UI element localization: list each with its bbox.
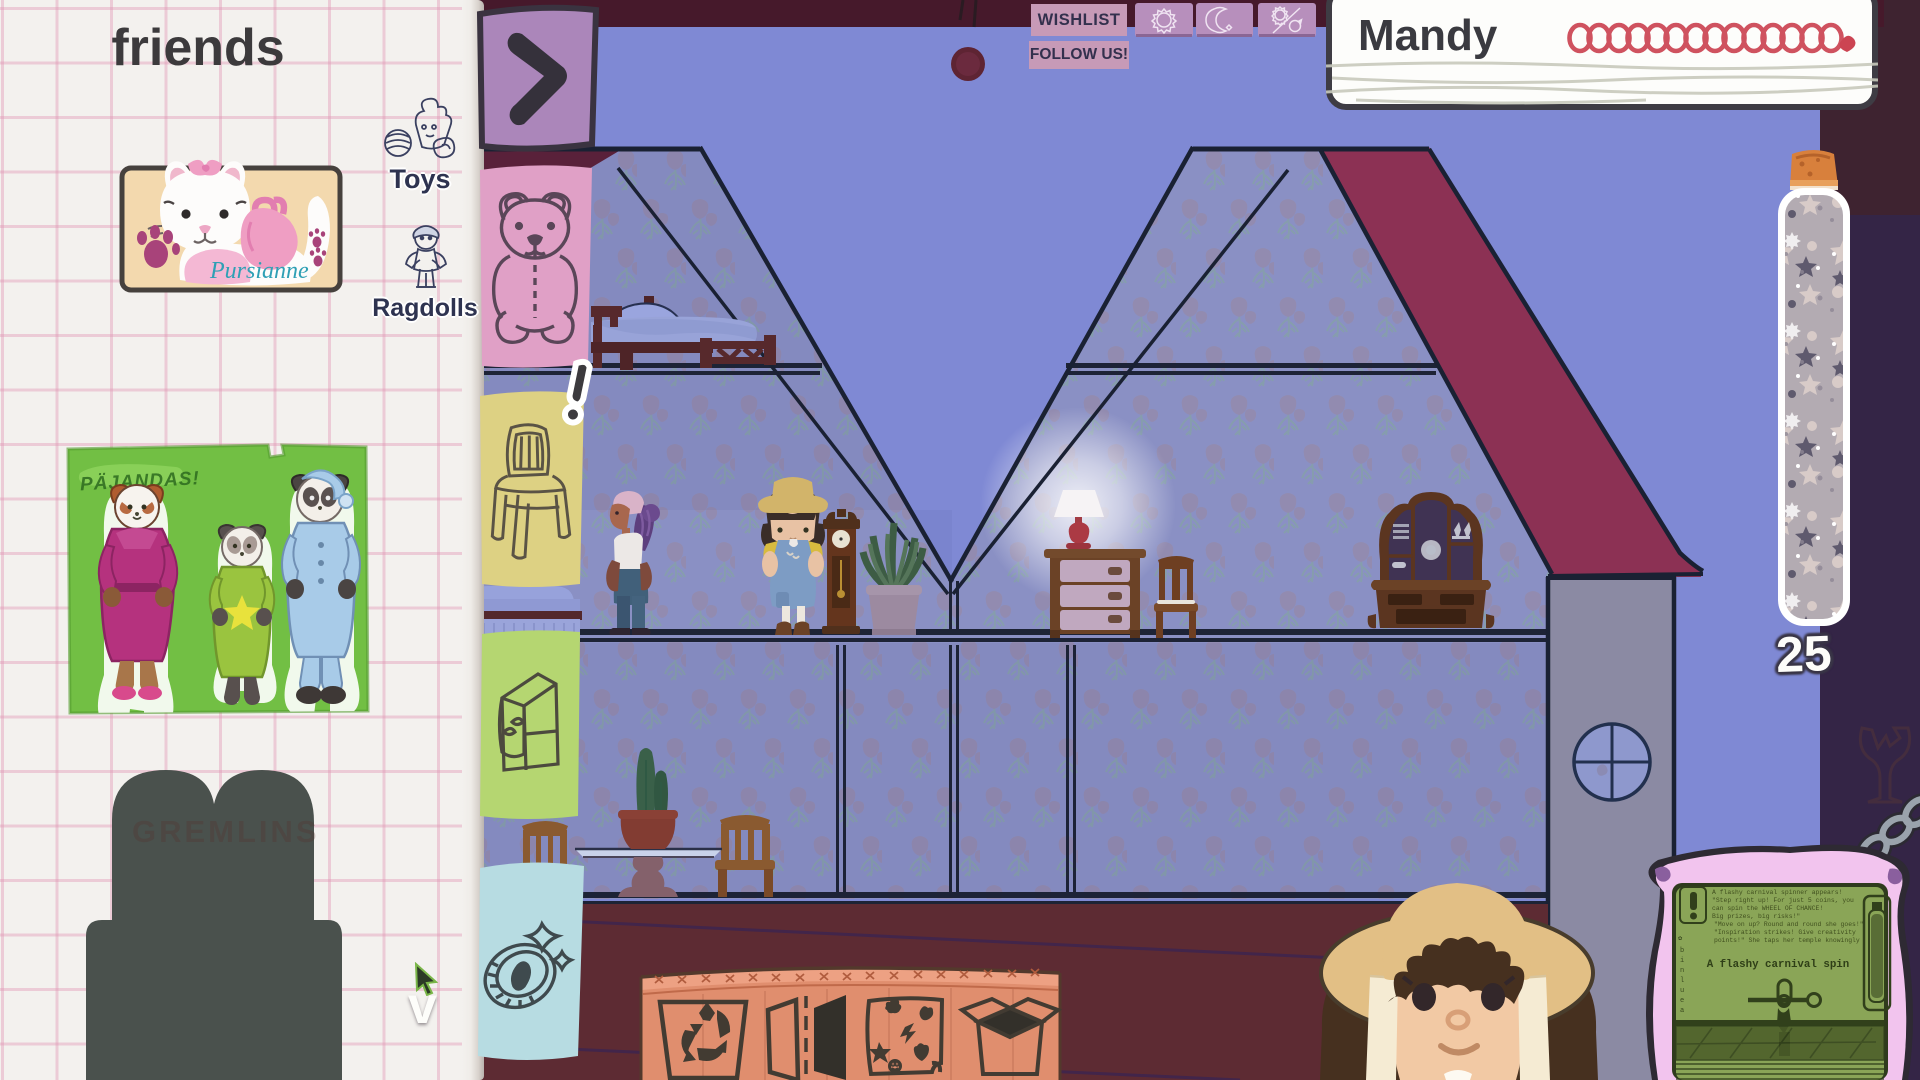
svg-text:l: l bbox=[1680, 977, 1684, 985]
svg-text:u: u bbox=[1680, 987, 1684, 995]
svg-text:points!" She taps her temple k: points!" She taps her temple knowingly bbox=[1714, 937, 1860, 944]
svg-text:Big prizes, big risks!": Big prizes, big risks!" bbox=[1712, 913, 1800, 920]
svg-text:n: n bbox=[1680, 967, 1684, 975]
svg-text:A flashy carnival spinner appe: A flashy carnival spinner appears! bbox=[1712, 889, 1842, 896]
svg-text:can spin the WHEEL OF CHANCE!: can spin the WHEEL OF CHANCE! bbox=[1712, 905, 1823, 912]
svg-text:b: b bbox=[1680, 947, 1684, 955]
svg-text:Pursianne: Pursianne bbox=[209, 258, 309, 284]
svg-text:"Inspiration strikes! Give cre: "Inspiration strikes! Give creativity bbox=[1714, 929, 1856, 936]
svg-text:"Step right up! For just 5 coi: "Step right up! For just 5 coins, you bbox=[1712, 897, 1854, 904]
svg-text:a: a bbox=[1680, 1007, 1684, 1015]
svg-text:e: e bbox=[1680, 997, 1684, 1005]
svg-text:"Move on up? Round and round s: "Move on up? Round and round she goes!" bbox=[1714, 921, 1864, 928]
svg-text:A flashy carnival spin: A flashy carnival spin bbox=[1707, 959, 1850, 971]
svg-text:GREMLINS: GREMLINS bbox=[132, 814, 320, 849]
svg-text:i: i bbox=[1680, 957, 1684, 965]
